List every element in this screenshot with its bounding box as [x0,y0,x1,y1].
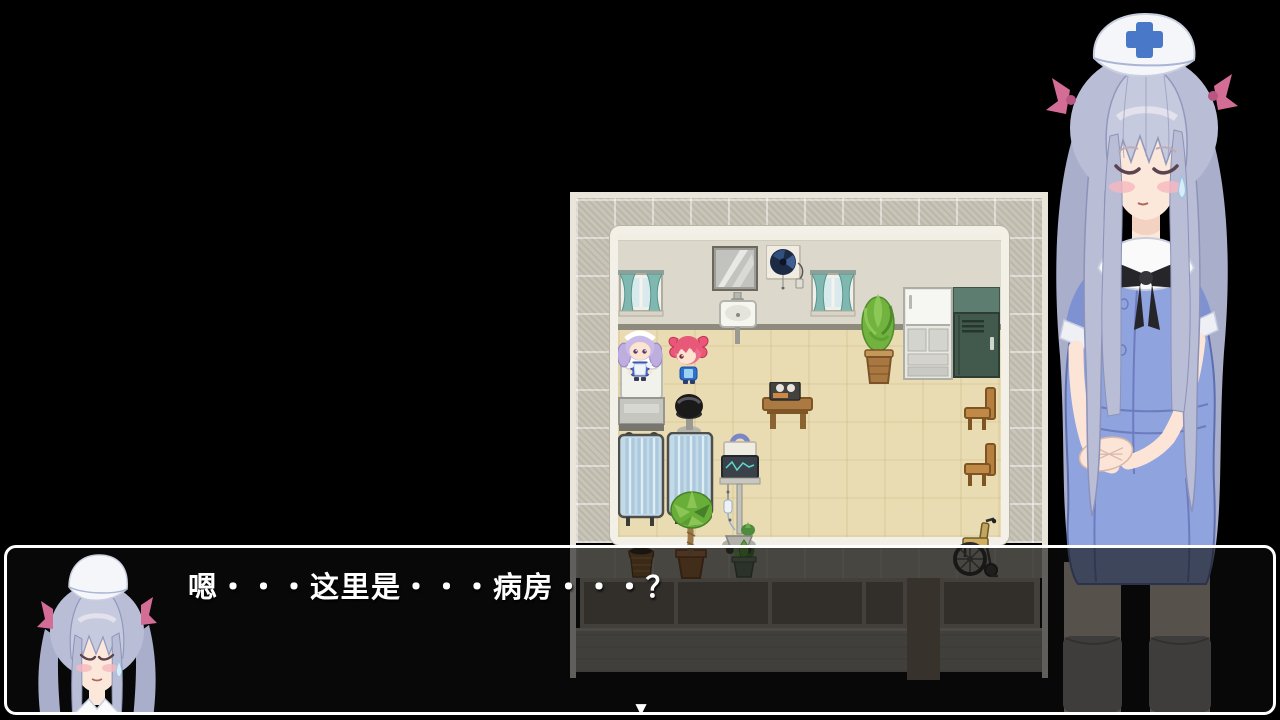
chair-icon [963,387,997,432]
blush-left [1109,181,1135,193]
wall-mirror-icon [712,246,758,291]
window-left-icon [618,267,664,317]
hair-ribbon-left [1046,78,1076,114]
nurse-cap [1094,14,1195,76]
table-with-radio-icon [762,382,813,432]
ward-room [610,226,1009,545]
dialogue-box[interactable]: 嗯・・・这里是・・・病房・・・？ ▼ [4,545,1276,715]
game-screen: 嗯・・・这里是・・・病房・・・？ ▼ [0,0,1280,720]
ventilation-fan-icon [766,245,806,291]
chair-icon [963,443,997,488]
hair-ribbon-right [141,597,157,625]
nurse-cap-small [69,555,127,600]
dialogue-bust-nurse [29,551,165,715]
wall-sink-icon [719,292,757,344]
locker-icon [953,287,1000,378]
refrigerator-icon [903,287,953,380]
crown-molding [618,234,1001,241]
hair-ribbon-left [37,601,53,629]
potted-plant-icon [858,288,900,388]
npc-pink-girl-sprite[interactable] [666,331,710,389]
dialogue-text: 嗯・・・这里是・・・病房・・・？ [188,564,676,606]
continue-indicator[interactable]: ▼ [627,700,655,715]
window-right-icon [810,267,856,317]
npc-maid-sprite[interactable] [618,327,662,385]
